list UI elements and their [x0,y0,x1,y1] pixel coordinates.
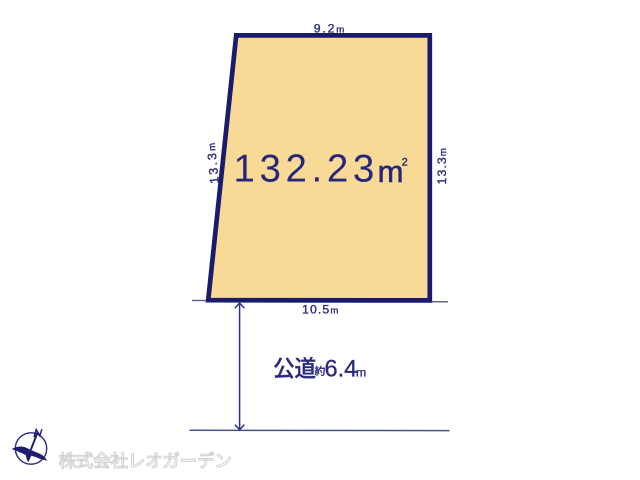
svg-text:13.3m: 13.3m [435,147,449,184]
svg-text:m: m [356,365,366,379]
svg-text:m: m [378,154,404,189]
svg-text:6.4: 6.4 [325,356,358,382]
svg-text:9.2m: 9.2m [314,21,346,35]
svg-text:132.23: 132.23 [234,148,379,191]
svg-text:2: 2 [402,156,408,168]
svg-text:10.5m: 10.5m [302,303,339,317]
